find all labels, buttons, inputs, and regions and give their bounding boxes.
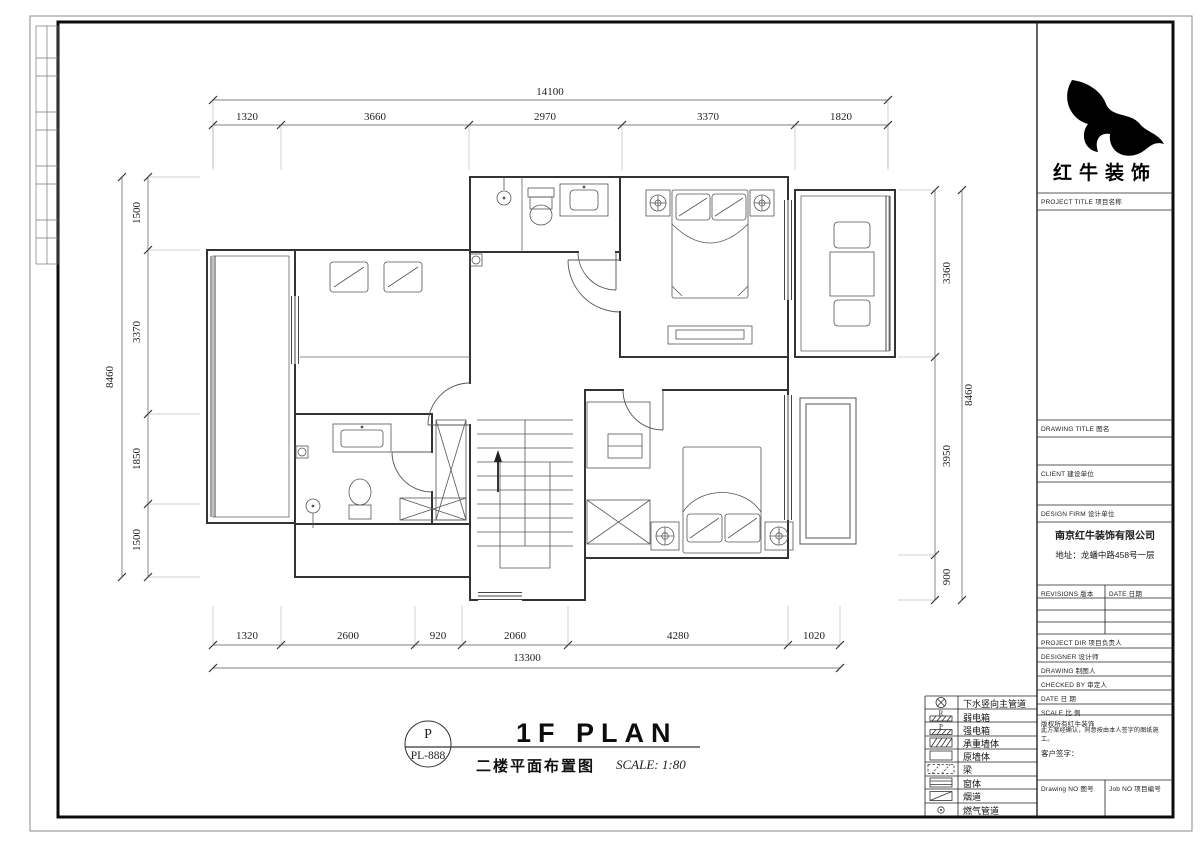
beam-icon bbox=[928, 765, 954, 774]
tb-client: CLIENT 建设单位 bbox=[1041, 468, 1094, 478]
legend-item-label: 原墙体 bbox=[963, 750, 990, 763]
tb-date: DATE 日 期 bbox=[1041, 693, 1076, 703]
dim-bottom-seg-1: 2600 bbox=[313, 630, 383, 642]
weak-current-box-icon: R bbox=[930, 710, 952, 722]
legend-item-label: 下水竖向主管道 bbox=[963, 697, 1026, 710]
dimension-lines bbox=[118, 96, 966, 672]
dim-top-seg-2: 2970 bbox=[510, 111, 580, 123]
plan-scale-note: SCALE: 1:80 bbox=[616, 757, 686, 773]
legend-item-label: 梁 bbox=[963, 763, 972, 776]
drawing-sheet: R P bbox=[0, 0, 1200, 844]
tb-job-no: Job NO 项目编号 bbox=[1109, 783, 1161, 793]
tb-firm-address: 地址：龙蟠中路458号一层 bbox=[1037, 549, 1173, 561]
tb-firm-name: 南京红牛装饰有限公司 bbox=[1037, 527, 1173, 542]
dim-top-seg-4: 1820 bbox=[806, 111, 876, 123]
tb-designer: DESIGNER 设计师 bbox=[1041, 651, 1099, 661]
dim-right-seg-1: 3950 bbox=[941, 426, 953, 486]
dim-left-total: 8460 bbox=[104, 347, 116, 407]
floor-plan bbox=[118, 96, 966, 672]
tb-project-title: PROJECT TITLE 项目名称 bbox=[1041, 196, 1122, 206]
dim-bottom-total: 13300 bbox=[487, 652, 567, 664]
strong-current-box-icon: P bbox=[930, 723, 952, 735]
load-bearing-wall-icon bbox=[930, 738, 952, 747]
flue-icon bbox=[930, 792, 952, 801]
tb-design-firm: DESIGN FIRM 设计单位 bbox=[1041, 508, 1115, 518]
dim-bottom-seg-0: 1320 bbox=[212, 630, 282, 642]
tb-revisions: REVISIONS 版本 bbox=[1041, 588, 1094, 598]
tb-client-sign: 客户签字： bbox=[1041, 748, 1079, 759]
tb-drawing-no: Drawing NO 图号 bbox=[1041, 783, 1094, 793]
tb-revision-date: DATE 日期 bbox=[1109, 588, 1142, 598]
guest-bed-pillows bbox=[330, 262, 422, 292]
dim-left-seg-1: 3370 bbox=[131, 302, 143, 362]
dim-bottom-seg-5: 1020 bbox=[779, 630, 849, 642]
dim-bottom-seg-3: 2060 bbox=[480, 630, 550, 642]
bottom-bathroom bbox=[296, 424, 391, 528]
tb-drafter: DRAWING 制图人 bbox=[1041, 665, 1096, 675]
tb-scale: SCALE 比 例 bbox=[1041, 707, 1081, 717]
legend-item-label: 窗体 bbox=[963, 777, 981, 790]
legend-symbols: R P bbox=[928, 698, 954, 814]
plan-title-cn: 二楼平面布置图 bbox=[476, 755, 595, 776]
dim-left-seg-0: 1500 bbox=[131, 183, 143, 243]
dim-top-seg-3: 3370 bbox=[673, 111, 743, 123]
tb-checked-by: CHECKED BY 审定人 bbox=[1041, 679, 1107, 689]
dim-top-total: 14100 bbox=[510, 86, 590, 98]
company-logo-icon bbox=[1067, 80, 1164, 156]
tb-drawing-title: DRAWING TITLE 图名 bbox=[1041, 423, 1110, 433]
tb-project-dir: PROJECT DIR 项目负责人 bbox=[1041, 637, 1122, 647]
plan-title-en: 1F PLAN bbox=[516, 718, 678, 749]
stamp-number: PL-888 bbox=[398, 750, 458, 762]
gas-pipe-icon bbox=[938, 807, 944, 813]
dim-bottom-seg-2: 920 bbox=[403, 630, 473, 642]
legend-item-label: 烟道 bbox=[963, 790, 981, 803]
window-icon bbox=[930, 778, 952, 787]
dim-right-seg-2: 900 bbox=[941, 547, 953, 607]
dim-right-total: 8460 bbox=[963, 365, 975, 425]
dim-top-seg-1: 3660 bbox=[340, 111, 410, 123]
legend-item-label: 弱电箱 bbox=[963, 711, 990, 724]
tb-copyright-2: 此方案经确认，同意按由本人签字的图纸施工。 bbox=[1041, 727, 1169, 745]
brand-name: 红牛装饰 bbox=[1042, 158, 1168, 185]
staircase bbox=[477, 420, 573, 568]
legend-item-label: 承重墙体 bbox=[963, 737, 999, 750]
stamp-letter: P bbox=[408, 727, 448, 743]
dim-right-seg-0: 3360 bbox=[941, 243, 953, 303]
plan-doors bbox=[392, 252, 663, 492]
dim-bottom-seg-4: 4280 bbox=[643, 630, 713, 642]
sheet-grid-strip bbox=[36, 26, 58, 264]
bay-window bbox=[800, 398, 856, 544]
dim-left-seg-3: 1500 bbox=[131, 510, 143, 570]
original-wall-icon bbox=[930, 751, 952, 760]
legend-item-label: 燃气管道 bbox=[963, 804, 999, 817]
legend-item-label: 强电箱 bbox=[963, 724, 990, 737]
drain-main-icon bbox=[936, 698, 946, 708]
dim-top-seg-0: 1320 bbox=[212, 111, 282, 123]
second-bed bbox=[651, 447, 793, 553]
dim-left-seg-2: 1850 bbox=[131, 429, 143, 489]
master-bed bbox=[646, 190, 774, 344]
balcony-furniture bbox=[830, 222, 874, 326]
